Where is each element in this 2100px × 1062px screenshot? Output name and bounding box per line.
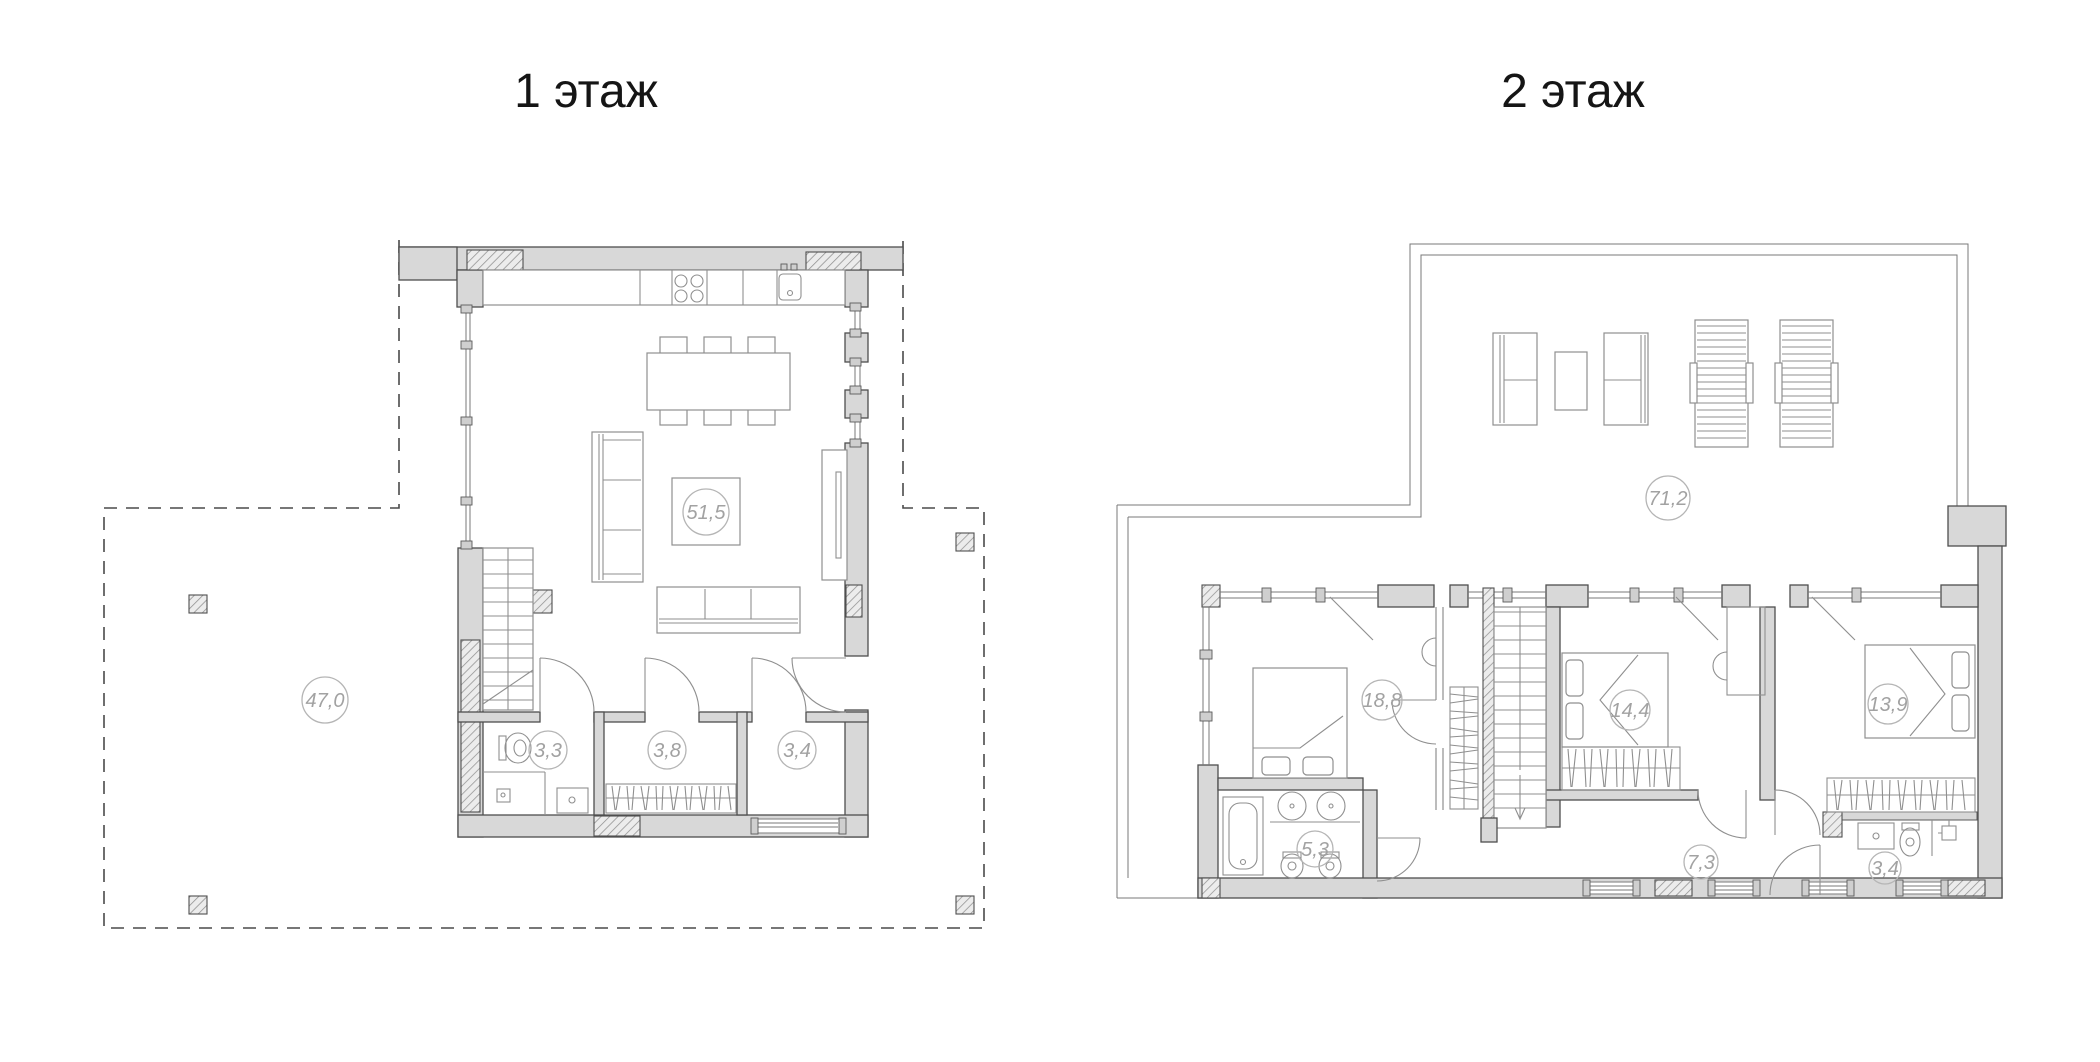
sofa-horizontal	[657, 587, 800, 633]
svg-text:3,4: 3,4	[783, 740, 811, 762]
svg-text:18,8: 18,8	[1363, 690, 1402, 712]
svg-text:14,4: 14,4	[1611, 700, 1650, 722]
bedroom-middle	[1562, 607, 1765, 838]
door-swing	[645, 658, 699, 712]
area-label-wardrobe-1f: 3,8	[648, 731, 686, 769]
toilet-icon	[1281, 852, 1303, 878]
svg-text:71,2: 71,2	[1649, 488, 1688, 510]
chair-icon	[1422, 638, 1436, 666]
sink-icon	[1317, 792, 1345, 820]
entry-door-swing	[792, 658, 846, 712]
staircase-floor1	[483, 548, 533, 710]
chimney-block	[467, 250, 523, 270]
hall-window	[755, 819, 843, 833]
door-swing	[1698, 790, 1746, 838]
lounger	[1775, 320, 1838, 447]
desk	[1713, 607, 1765, 695]
area-label-corridor: 7,3	[1684, 845, 1718, 879]
tv-cabinet	[822, 450, 847, 580]
sink-icon	[1858, 823, 1894, 849]
dining-table	[647, 353, 790, 410]
sofa-vertical	[592, 432, 643, 582]
stair-newel	[532, 590, 552, 613]
terrace-post	[956, 533, 974, 551]
area-label-bathroom-1f: 3,3	[529, 731, 567, 769]
floor-plans-page: 1 этаж 2 этаж	[0, 0, 2100, 1062]
sink-icon	[557, 788, 588, 813]
svg-text:3,4: 3,4	[1871, 858, 1899, 880]
bathroom-left-fixtures	[1223, 792, 1420, 881]
svg-text:3,3: 3,3	[534, 740, 562, 762]
floor2-title: 2 этаж	[1501, 65, 1645, 118]
pillow	[1262, 757, 1290, 775]
balcony-door-leaf	[1330, 597, 1373, 640]
terrace-post	[189, 595, 207, 613]
balcony-door-leaf	[1676, 597, 1718, 640]
svg-text:3,8: 3,8	[653, 740, 681, 762]
wardrobe-rail	[1562, 747, 1680, 790]
pillow	[1952, 652, 1969, 688]
floor1-doors	[540, 658, 846, 712]
bathroom-right-fixtures	[1858, 820, 1956, 856]
bedroom-right	[1827, 645, 1975, 812]
open-space-furniture	[1493, 320, 1838, 447]
floor1-plan: 47,0 51,5 3,3 3,8 3,4	[104, 237, 984, 928]
kitchen-counter	[483, 264, 845, 305]
pillow	[1952, 695, 1969, 731]
lounger	[1690, 320, 1753, 447]
svg-text:13,9: 13,9	[1869, 694, 1908, 716]
door-swing	[752, 658, 806, 712]
wardrobe-rail	[1450, 687, 1478, 809]
door-swing	[1377, 838, 1420, 881]
wardrobe-floor1-rail	[606, 784, 736, 813]
wardrobe-rail	[1827, 778, 1975, 812]
balcony-door-leaf	[1812, 597, 1855, 640]
svg-text:51,5: 51,5	[687, 502, 727, 524]
chimney-block	[806, 252, 861, 270]
terrace-post	[956, 896, 974, 914]
pillow	[1303, 757, 1333, 775]
toilet-icon	[1900, 823, 1920, 856]
area-label-open-space: 71,2	[1646, 476, 1690, 520]
door-swing	[1775, 790, 1820, 835]
area-label-terrace: 47,0	[302, 677, 348, 723]
floor1-title: 1 этаж	[514, 65, 658, 118]
floor-plans-drawing: 1 этаж 2 этаж	[0, 0, 2100, 1062]
shower-icon	[1938, 820, 1956, 840]
chair-icon	[1713, 652, 1727, 680]
dining-table-set	[647, 337, 790, 425]
floor2-plan: 71,2 18,8 14,4 13,9 5,3 7,3	[1117, 244, 2006, 898]
pillow	[1566, 703, 1583, 739]
shower-icon	[497, 789, 510, 802]
svg-text:47,0: 47,0	[306, 690, 345, 712]
shower-partition	[483, 772, 545, 815]
svg-text:5,3: 5,3	[1301, 839, 1329, 861]
area-label-bathroom-right: 3,4	[1869, 852, 1901, 884]
area-label-hall-1f: 3,4	[778, 731, 816, 769]
svg-text:7,3: 7,3	[1687, 852, 1715, 874]
living-room-furniture	[592, 432, 847, 633]
door-swing	[540, 658, 594, 712]
side-table	[1555, 352, 1587, 410]
area-label-bedroom-left: 18,8	[1362, 680, 1402, 720]
pillow	[1566, 660, 1583, 696]
area-label-bathroom-left: 5,3	[1297, 831, 1333, 867]
terrace-post	[189, 896, 207, 914]
sink-icon	[1278, 792, 1306, 820]
staircase-floor2	[1481, 588, 1546, 842]
